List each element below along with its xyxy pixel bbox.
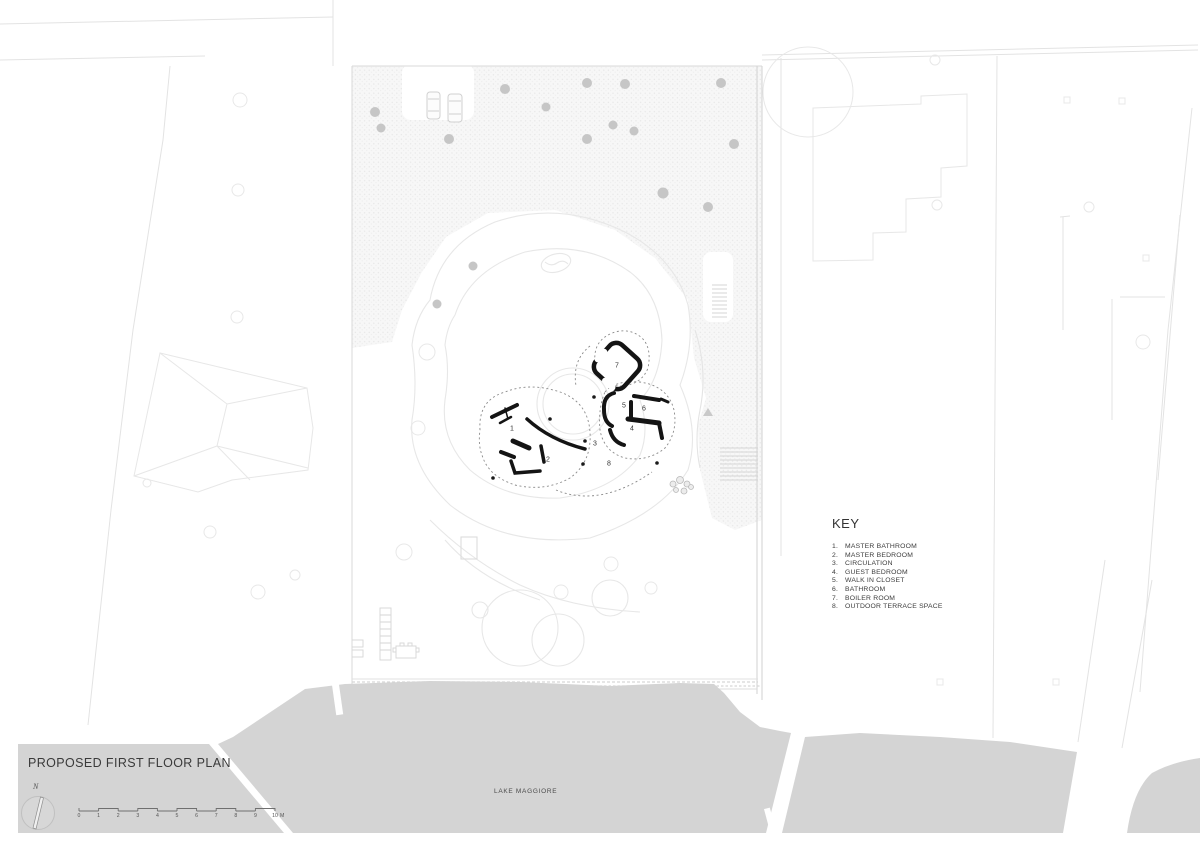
key-legend: 1.MASTER BATHROOM 2.MASTER BEDROOM 3.CIR… <box>832 543 943 612</box>
key-item: 1.MASTER BATHROOM <box>832 543 943 552</box>
room-marker-7: 7 <box>615 363 619 370</box>
key-item: 5.WALK IN CLOSET <box>832 577 943 586</box>
key-item: 4.GUEST BEDROOM <box>832 569 943 578</box>
site-plan-drawing <box>0 0 1200 848</box>
scale-tick-label: 8 <box>234 813 237 819</box>
key-item: 7.BOILER ROOM <box>832 595 943 604</box>
scale-tick-label: 2 <box>117 813 120 819</box>
north-arrow-icon <box>22 797 55 830</box>
room-marker-2: 2 <box>546 457 550 464</box>
key-item: 6.BATHROOM <box>832 586 943 595</box>
key-item: 2.MASTER BEDROOM <box>832 552 943 561</box>
key-item: 8.OUTDOOR TERRACE SPACE <box>832 603 943 612</box>
room-marker-8: 8 <box>607 461 611 468</box>
outdoor-table <box>396 646 416 658</box>
scale-tick-label: 4 <box>156 813 159 819</box>
lake-corner <box>1127 758 1200 833</box>
scale-tick-label: 0 <box>78 813 81 819</box>
room-marker-3: 3 <box>593 441 597 448</box>
scale-tick-label: 10 <box>272 813 278 819</box>
scale-unit-label: M <box>280 813 284 819</box>
key-heading: KEY <box>832 516 860 531</box>
scale-tick-label: 5 <box>176 813 179 819</box>
lake-right <box>782 733 1077 833</box>
scale-tick-label: 7 <box>215 813 218 819</box>
room-marker-5: 5 <box>622 403 626 410</box>
north-label: N <box>33 782 38 791</box>
garden-stipple-area <box>352 64 762 530</box>
key-item: 3.CIRCULATION <box>832 560 943 569</box>
scale-tick-label: 9 <box>254 813 257 819</box>
scale-tick-label: 6 <box>195 813 198 819</box>
garden-structures <box>352 608 419 660</box>
room-marker-1: 1 <box>510 426 514 433</box>
lake-label: LAKE MAGGIORE <box>494 788 557 795</box>
shrub-cluster <box>670 477 694 495</box>
room-marker-6: 6 <box>642 406 646 413</box>
room-marker-4: 4 <box>630 426 634 433</box>
scale-tick-label: 1 <box>97 813 100 819</box>
scale-tick-label: 3 <box>136 813 139 819</box>
column-dots <box>491 395 659 480</box>
floor-plan-sheet: PROPOSED FIRST FLOOR PLAN KEY 1.MASTER B… <box>0 0 1200 848</box>
page-title: PROPOSED FIRST FLOOR PLAN <box>28 756 231 770</box>
lake-main <box>218 681 791 833</box>
house-dashed-outlines <box>479 331 675 496</box>
